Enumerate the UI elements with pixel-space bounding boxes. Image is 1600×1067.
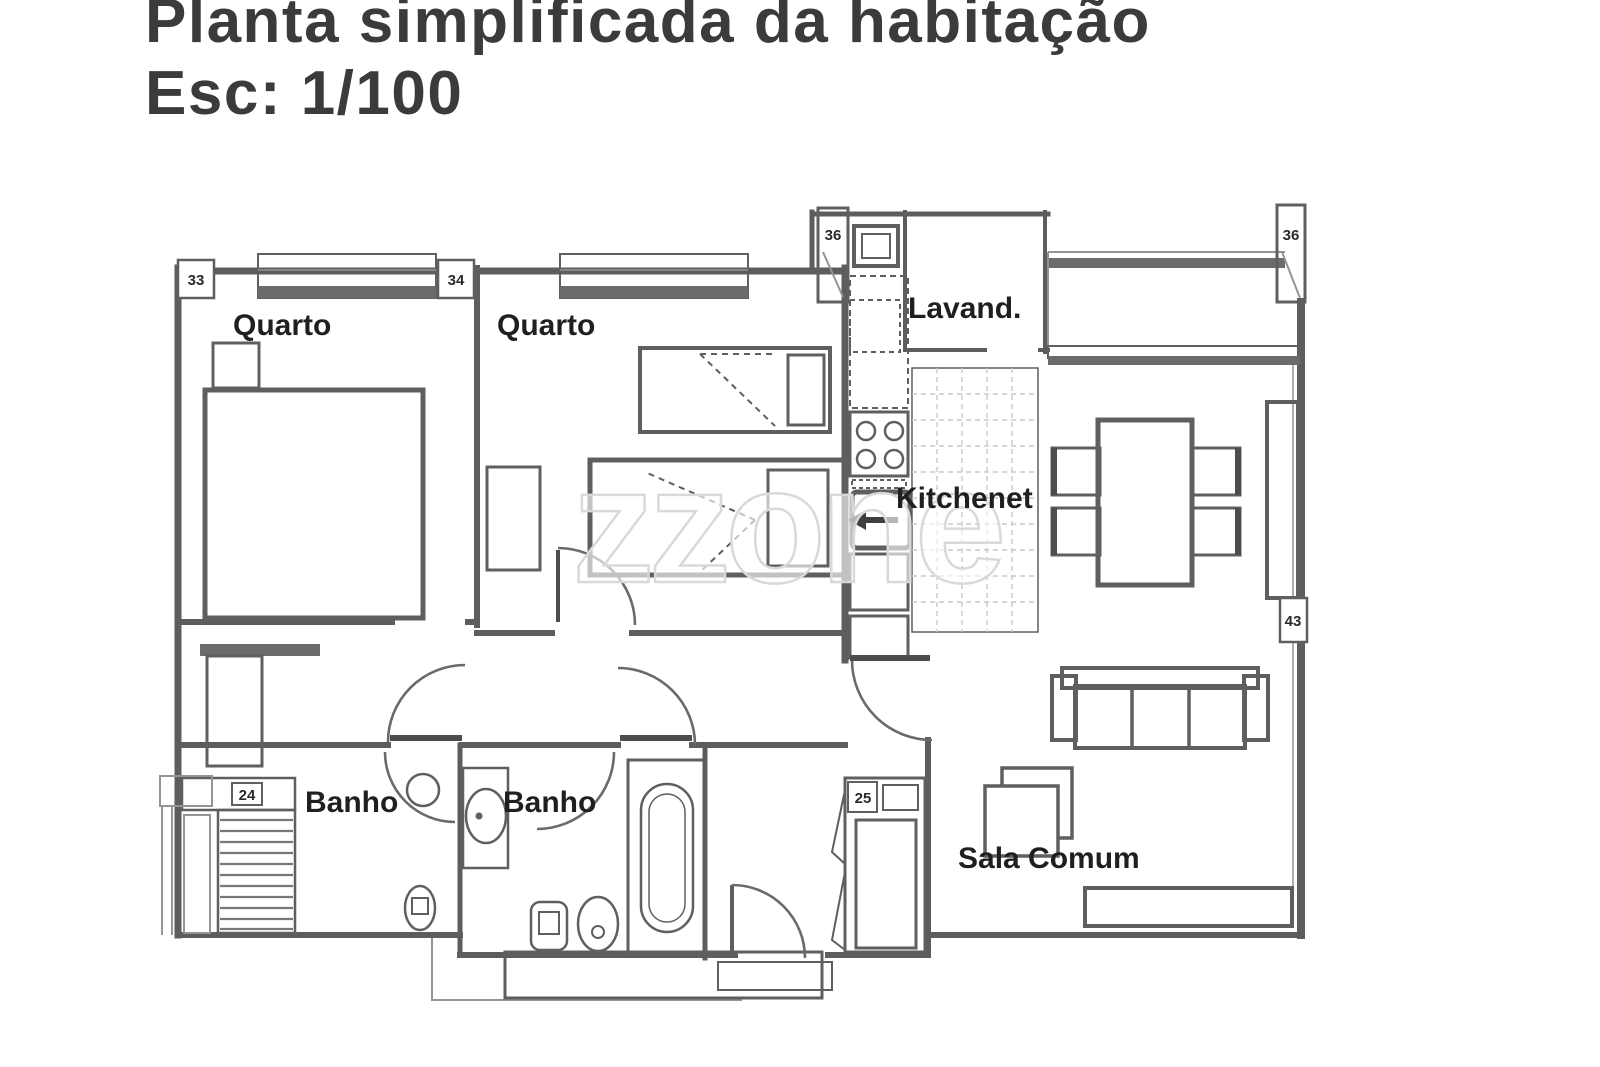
room-label-sala-comum: Sala Comum bbox=[958, 842, 1140, 875]
marker-24: 24 bbox=[239, 787, 256, 804]
bidet-icon bbox=[578, 897, 618, 951]
window-mid-bedroom-icon bbox=[560, 254, 748, 298]
floor-plan: zzone Quarto Quarto Lavand. Kitchenet Ba… bbox=[0, 0, 1600, 1062]
door-arc bbox=[852, 660, 932, 740]
marker-34: 34 bbox=[448, 272, 465, 289]
chair-icon bbox=[1192, 508, 1240, 555]
low-shelf bbox=[1085, 888, 1292, 926]
duct-column-right bbox=[1277, 205, 1305, 302]
marker-25: 25 bbox=[855, 790, 872, 807]
door-arc bbox=[618, 668, 695, 745]
washing-machine-icon bbox=[850, 226, 900, 352]
room-label-quarto-2: Quarto bbox=[497, 309, 595, 342]
marker-43: 43 bbox=[1285, 613, 1302, 630]
round-sink-icon bbox=[407, 774, 439, 806]
watermark: zzone bbox=[572, 433, 1002, 617]
bathroom1-fixtures bbox=[405, 774, 439, 930]
left-balcony bbox=[160, 776, 212, 935]
hall-closet bbox=[207, 656, 262, 766]
folding-door-icon bbox=[832, 790, 845, 950]
toilet-icon bbox=[531, 902, 567, 950]
room-label-quarto-1: Quarto bbox=[233, 309, 331, 342]
marker-33: 33 bbox=[188, 272, 205, 289]
room-label-kitchenet: Kitchenet bbox=[896, 482, 1033, 515]
chair-icon bbox=[1052, 448, 1100, 495]
entrance-cabinet bbox=[832, 778, 925, 952]
door-arc bbox=[388, 665, 465, 742]
bedroom2-wardrobe bbox=[487, 467, 540, 570]
pillow-icon bbox=[788, 355, 824, 425]
room-label-banho-2: Banho bbox=[503, 786, 596, 819]
room-label-lavandaria: Lavand. bbox=[908, 292, 1021, 325]
room-label-banho-1: Banho bbox=[305, 786, 398, 819]
chair-icon bbox=[1192, 448, 1240, 495]
sofa bbox=[1052, 668, 1268, 748]
dining-table-set bbox=[1052, 420, 1240, 585]
entrance-door bbox=[718, 885, 832, 990]
oval-sink-icon bbox=[466, 789, 506, 843]
dining-table bbox=[1098, 420, 1192, 585]
sink-pedestal bbox=[463, 768, 508, 868]
marker-36-right: 36 bbox=[1283, 227, 1300, 244]
double-bed bbox=[205, 343, 423, 618]
bathtub-icon bbox=[628, 760, 706, 954]
living-room-window-icon bbox=[1048, 346, 1300, 365]
chair-icon bbox=[1052, 508, 1100, 555]
toilet-icon bbox=[405, 886, 435, 930]
nightstand-icon bbox=[213, 343, 259, 388]
single-bed-top bbox=[640, 348, 830, 432]
window-left-bedroom-icon bbox=[258, 254, 436, 298]
marker-36-top: 36 bbox=[825, 227, 842, 244]
balcony-rail-icon bbox=[1048, 252, 1285, 352]
floor-plan-svg: zzone Quarto Quarto Lavand. Kitchenet Ba… bbox=[0, 0, 1600, 1062]
threshold bbox=[718, 962, 832, 990]
